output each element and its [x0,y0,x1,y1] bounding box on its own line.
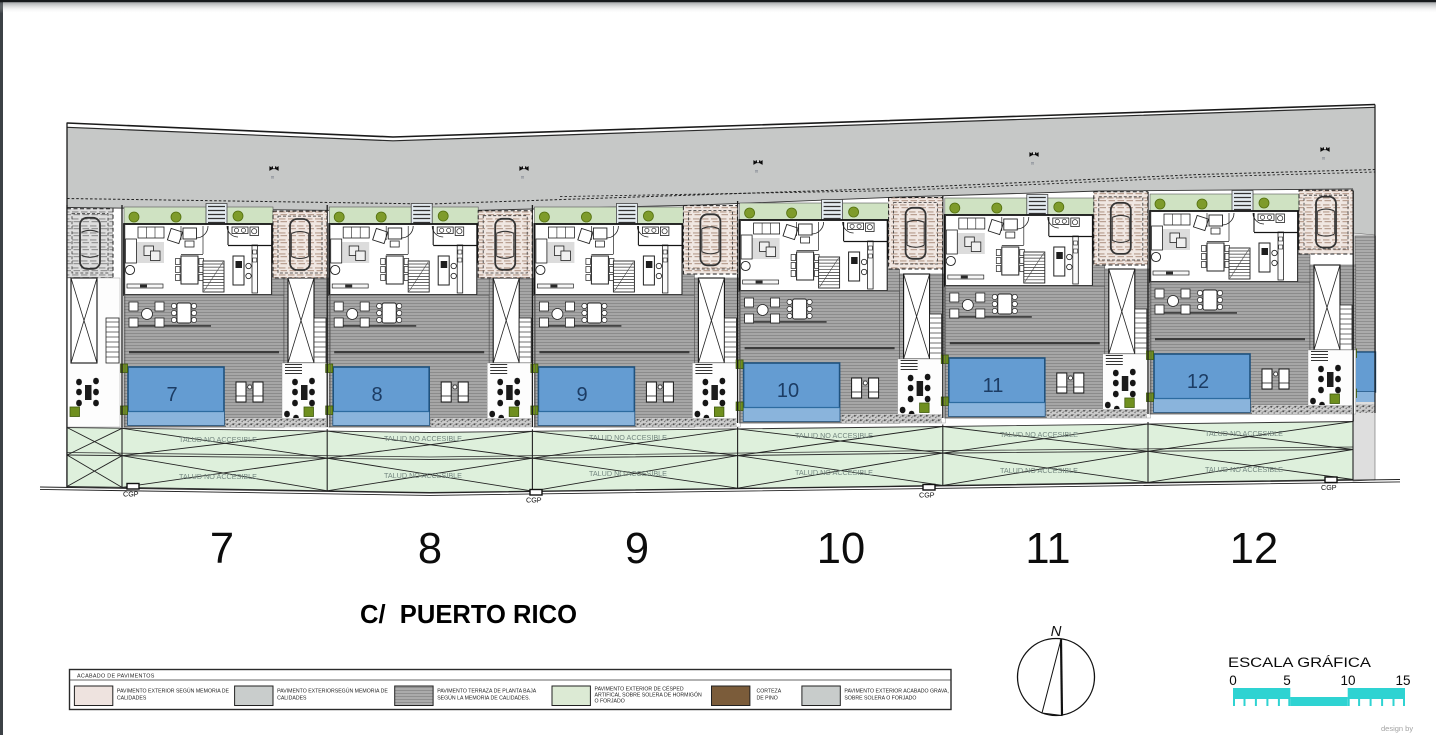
svg-text:7: 7 [210,525,234,573]
svg-text:O FORJADO: O FORJADO [595,699,625,705]
svg-text:CGP: CGP [526,496,542,505]
svg-text:9: 9 [625,525,649,573]
svg-text:ESCALA GRÁFICA: ESCALA GRÁFICA [1228,654,1372,671]
svg-text:TALUD NO ACCESIBLE: TALUD NO ACCESIBLE [1205,429,1283,438]
svg-text:10: 10 [817,525,865,573]
svg-text:N: N [1051,623,1062,640]
svg-text:E: E [520,176,525,179]
svg-text:9: 9 [576,384,587,406]
svg-text:10: 10 [1340,673,1355,688]
svg-text:11: 11 [1025,525,1070,573]
svg-text:design by: design by [1381,724,1413,733]
svg-text:PAVIMENTO EXTERIOR DE CÉSPED: PAVIMENTO EXTERIOR DE CÉSPED [595,686,684,693]
svg-text:CGP: CGP [123,490,139,499]
svg-text:TALUD NO ACCESIBLE: TALUD NO ACCESIBLE [589,469,667,478]
svg-text:TALUD NO ACCESIBLE: TALUD NO ACCESIBLE [795,468,873,477]
svg-text:E: E [1321,157,1326,160]
svg-text:ACABADO DE PAVIMENTOS: ACABADO DE PAVIMENTOS [77,674,155,680]
svg-text:PAVIMENTO EXTERIOR SEGÚN MEMOR: PAVIMENTO EXTERIOR SEGÚN MEMORIA DE [117,688,230,695]
svg-text:10: 10 [777,380,799,402]
svg-text:TALUD NO ACCESIBLE: TALUD NO ACCESIBLE [384,471,462,480]
svg-text:TALUD NO ACCESIBLE: TALUD NO ACCESIBLE [384,434,462,443]
svg-text:PAVIMENTO EXTERIOR ACABADO GRA: PAVIMENTO EXTERIOR ACABADO GRAVA, [844,689,948,695]
svg-text:CALIDADES: CALIDADES [117,696,147,702]
svg-text:CGP: CGP [919,491,935,500]
svg-text:11: 11 [983,375,1004,397]
svg-text:ARTIFICAL SOBRE SOLERA DE HORM: ARTIFICAL SOBRE SOLERA DE HORMIGÓN [595,692,702,699]
svg-text:TALUD NO ACCESIBLE: TALUD NO ACCESIBLE [1205,465,1283,474]
svg-text:E: E [754,170,759,173]
svg-text:7: 7 [166,384,177,406]
svg-text:CGP: CGP [1321,483,1337,492]
svg-text:CALIDADES: CALIDADES [277,696,307,702]
svg-text:SOBRE SOLERA O FORJADO: SOBRE SOLERA O FORJADO [844,696,916,702]
svg-text:0: 0 [1229,673,1237,688]
svg-text:TALUD NO ACCESIBLE: TALUD NO ACCESIBLE [795,431,873,440]
svg-text:TALUD NO ACCESIBLE: TALUD NO ACCESIBLE [1000,466,1078,475]
svg-text:C/ PUERTO RICO: C/ PUERTO RICO [360,599,577,629]
svg-text:TALUD NO ACCESIBLE: TALUD NO ACCESIBLE [1000,430,1078,439]
svg-text:DE PINO: DE PINO [757,696,778,702]
svg-text:PAVIMENTO TERRAZA DE PLANTA BA: PAVIMENTO TERRAZA DE PLANTA BAJA [437,689,537,695]
svg-text:8: 8 [418,525,442,573]
svg-text:SEGÚN LA MEMORIA DE CALIDADES.: SEGÚN LA MEMORIA DE CALIDADES. [437,695,530,702]
svg-text:TALUD NO ACCESIBLE: TALUD NO ACCESIBLE [179,472,257,481]
svg-text:12: 12 [1230,525,1278,573]
svg-text:12: 12 [1187,371,1209,393]
svg-text:5: 5 [1283,673,1291,688]
svg-text:E: E [1030,162,1035,165]
svg-text:TALUD NO ACCESIBLE: TALUD NO ACCESIBLE [179,435,257,444]
svg-text:8: 8 [371,384,382,406]
svg-text:E: E [270,176,275,179]
svg-text:CORTEZA: CORTEZA [757,689,782,695]
svg-text:PAVIMENTO EXTERIORSEGÚN MEMORI: PAVIMENTO EXTERIORSEGÚN MEMORIA DE [277,688,388,695]
svg-text:15: 15 [1395,673,1410,688]
svg-text:TALUD NO ACCESIBLE: TALUD NO ACCESIBLE [589,433,667,442]
